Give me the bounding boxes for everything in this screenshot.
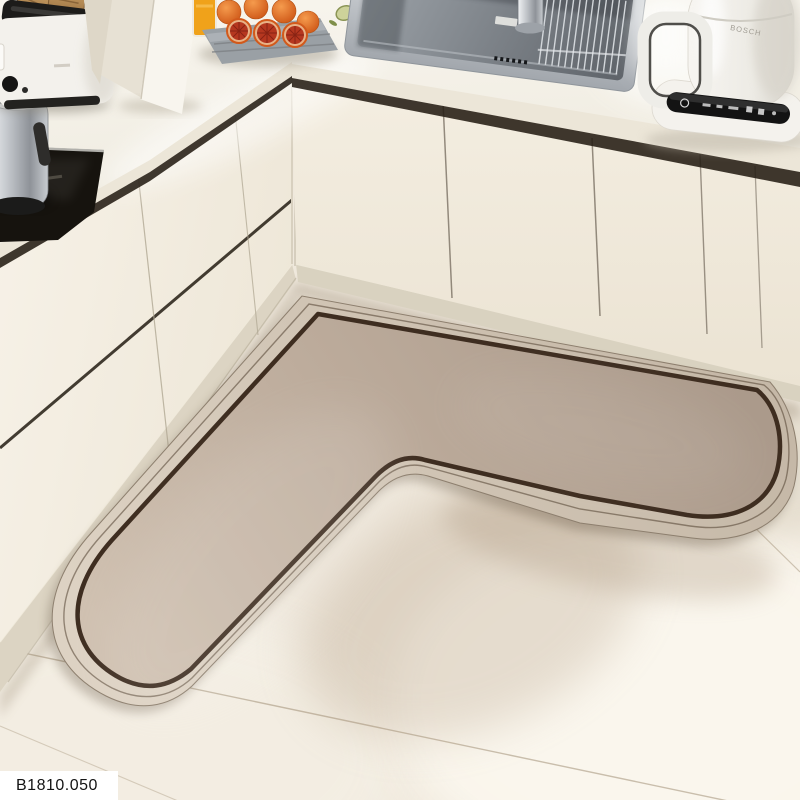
toaster-lever (0, 44, 4, 70)
orange-half (254, 20, 280, 46)
scene-canvas: BOSCH (0, 0, 800, 800)
toaster-button (22, 87, 28, 93)
orange-half (227, 19, 251, 43)
kitchen-scene: BOSCH B1810.050 (0, 0, 800, 800)
panel-indicator (758, 108, 765, 115)
product-label-text: B1810.050 (0, 777, 98, 795)
orange-whole (272, 0, 296, 23)
toaster-knob (2, 76, 18, 92)
orange-half (283, 23, 307, 47)
faucet-base (515, 23, 545, 34)
panel-indicator (746, 106, 753, 113)
product-label: B1810.050 (0, 771, 118, 800)
